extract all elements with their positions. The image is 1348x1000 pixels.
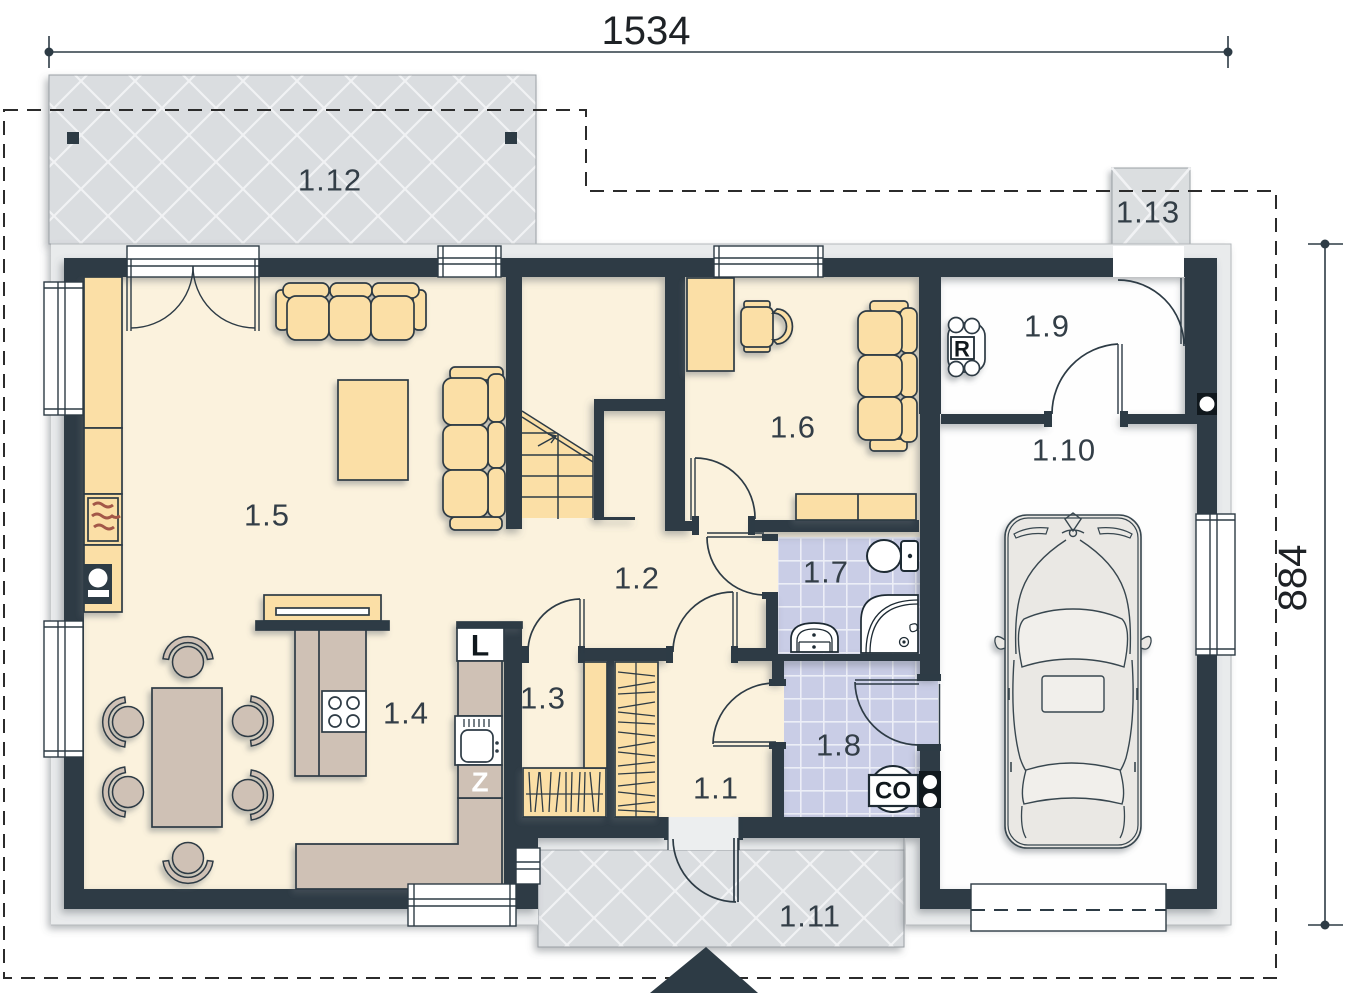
svg-text:L: L [471, 630, 489, 663]
svg-text:1.2: 1.2 [614, 561, 660, 596]
svg-text:1.9: 1.9 [1024, 309, 1070, 344]
svg-text:CO: CO [875, 778, 911, 805]
svg-text:1.5: 1.5 [244, 498, 290, 533]
svg-text:1.8: 1.8 [816, 728, 862, 763]
svg-text:1.1: 1.1 [693, 771, 739, 806]
svg-text:1.6: 1.6 [770, 410, 816, 445]
svg-text:1.7: 1.7 [803, 555, 849, 590]
svg-text:Z: Z [471, 767, 488, 798]
svg-text:1.10: 1.10 [1032, 433, 1096, 468]
svg-text:884: 884 [1271, 545, 1315, 612]
svg-text:R: R [954, 337, 970, 362]
svg-text:1.11: 1.11 [779, 899, 841, 934]
svg-text:1.4: 1.4 [383, 696, 429, 731]
svg-text:1.3: 1.3 [520, 681, 566, 716]
svg-text:1.13: 1.13 [1116, 195, 1180, 230]
svg-text:1534: 1534 [602, 9, 691, 53]
svg-text:1.12: 1.12 [298, 163, 362, 198]
